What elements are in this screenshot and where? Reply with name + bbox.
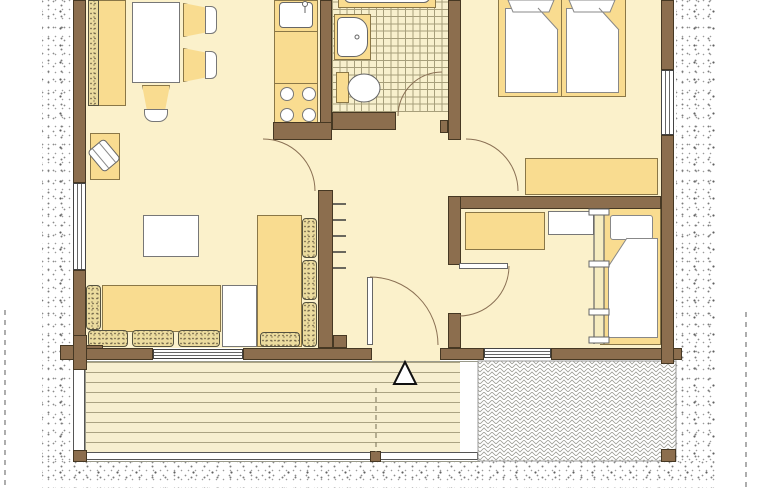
wall-right-upper — [661, 0, 674, 70]
dining-chair-bottom-back — [144, 109, 168, 122]
window-right-pane — [665, 71, 670, 134]
bedroom-small-door-leaf — [459, 263, 508, 269]
bathtub-basin — [344, 0, 430, 3]
sofa-cushion-bottom-3 — [178, 330, 220, 347]
single-bed-pillow — [610, 215, 653, 240]
floor-plan — [0, 0, 757, 489]
wardrobe — [465, 212, 545, 250]
wall-bedroom-small-west-upper — [448, 196, 461, 265]
coffee-table — [143, 215, 199, 257]
wall-bottom-a — [86, 348, 153, 360]
sofa-cushion-right-3 — [302, 302, 317, 347]
patio-herringbone — [478, 361, 676, 461]
sofa-side-table — [222, 285, 257, 347]
window-bottom-living-pane — [154, 352, 242, 356]
window-bottom-bedroom-pane — [485, 351, 550, 355]
patio-herringbone-pattern — [478, 361, 676, 461]
wall-hallway-west — [318, 190, 333, 348]
sofa-cushion-bottom-2 — [132, 330, 174, 347]
deck-post-left — [73, 450, 87, 462]
washbasin — [337, 17, 368, 57]
dining-chair-lower-back — [205, 51, 217, 79]
wall-kitchen-bottom — [273, 122, 332, 140]
kitchen-counter-divider-2 — [274, 83, 318, 84]
wall-kitchen-bathroom — [320, 0, 332, 140]
sofa-cushion-left — [86, 285, 101, 330]
dining-chair-upper — [183, 3, 207, 37]
wall-bottom-c — [440, 348, 484, 360]
wall-bathroom-right-foot — [440, 120, 448, 133]
sofa-cushion-right-2 — [302, 260, 317, 300]
wall-right-lower — [661, 135, 674, 364]
deck-post-middle — [370, 451, 381, 462]
wall-corner-left-v — [73, 335, 87, 370]
double-bed-divider — [561, 0, 562, 97]
wall-bench-cushion — [88, 0, 99, 106]
bedroom-large-sideboard — [525, 158, 658, 195]
wall-bedroom-small-west-lower — [448, 313, 461, 348]
dining-chair-upper-back — [205, 6, 217, 34]
wall-left-upper — [73, 0, 86, 183]
ground-stipple-bottom — [42, 461, 716, 488]
sofa-cushion-right-1 — [302, 218, 317, 258]
window-bottom-bedroom — [484, 348, 551, 358]
kitchen-counter-divider-1 — [274, 31, 318, 32]
desk — [548, 211, 594, 235]
front-door-leaf — [367, 277, 373, 345]
entrance-threshold — [372, 348, 440, 361]
toilet-tank — [336, 72, 349, 103]
wall-bedroom-divider — [450, 196, 661, 209]
sofa-cushion-bottom-4 — [260, 332, 300, 347]
window-left — [73, 183, 86, 270]
wall-hallway-west-stub — [333, 335, 347, 348]
ground-stipple-right — [676, 0, 716, 461]
wall-bathroom-right — [448, 0, 461, 140]
deck-planks — [86, 362, 460, 452]
wall-bottom-b — [243, 348, 372, 360]
window-right — [661, 70, 674, 135]
deck-post-right — [661, 449, 676, 462]
dining-chair-lower — [183, 48, 207, 82]
dining-table — [132, 2, 180, 83]
window-bottom-living — [153, 349, 243, 359]
sofa-seat-right — [257, 215, 302, 347]
kitchen-sink — [279, 2, 313, 28]
deck-edge-board-left — [73, 368, 85, 452]
sofa-seat-bottom — [102, 285, 221, 332]
deck-edge-board-bottom — [85, 452, 478, 460]
ground-stipple-left — [42, 0, 73, 461]
window-left-pane — [77, 184, 82, 269]
wall-bathroom-bottom — [332, 112, 396, 130]
